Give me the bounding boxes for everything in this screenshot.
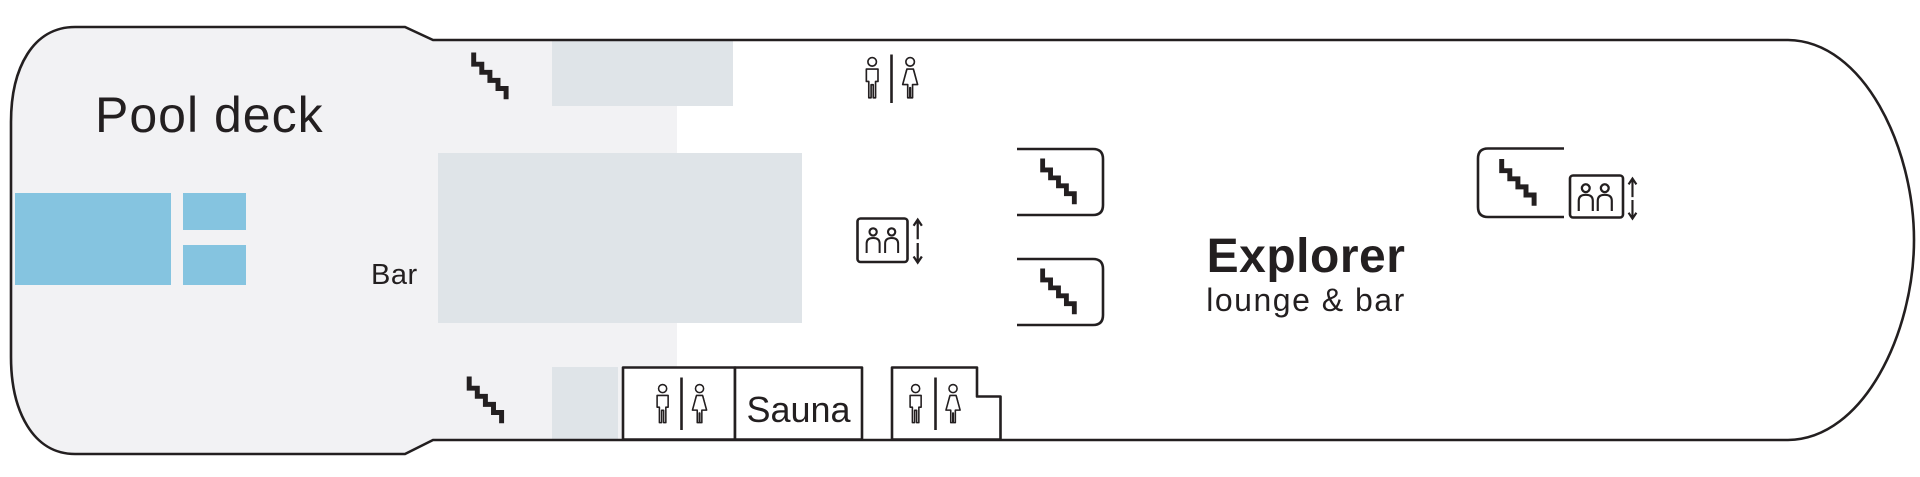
structure-bottom	[552, 367, 618, 439]
sauna-label: Sauna	[735, 392, 862, 428]
structure-top	[552, 41, 733, 106]
elevator-box-midship	[858, 219, 908, 263]
ship-deck-plan: Pool deck Bar Explorer lounge & bar Saun…	[0, 0, 1920, 477]
pool-small-upper	[183, 193, 246, 230]
pool-deck-label: Pool deck	[95, 90, 324, 140]
explorer-lounge-label: Explorer lounge & bar	[1156, 233, 1456, 316]
stairwell-box-forward	[1478, 149, 1564, 218]
pool-main	[15, 193, 171, 285]
bar-label: Bar	[371, 261, 418, 290]
explorer-lounge-subtitle: lounge & bar	[1156, 284, 1456, 316]
structure-mid	[438, 153, 802, 323]
deck-plan-drawing	[0, 0, 1920, 477]
elevator-box-forward	[1570, 176, 1623, 218]
pool-small-lower	[183, 245, 246, 285]
restroom-box-aft	[623, 368, 735, 440]
explorer-lounge-title: Explorer	[1156, 233, 1456, 281]
